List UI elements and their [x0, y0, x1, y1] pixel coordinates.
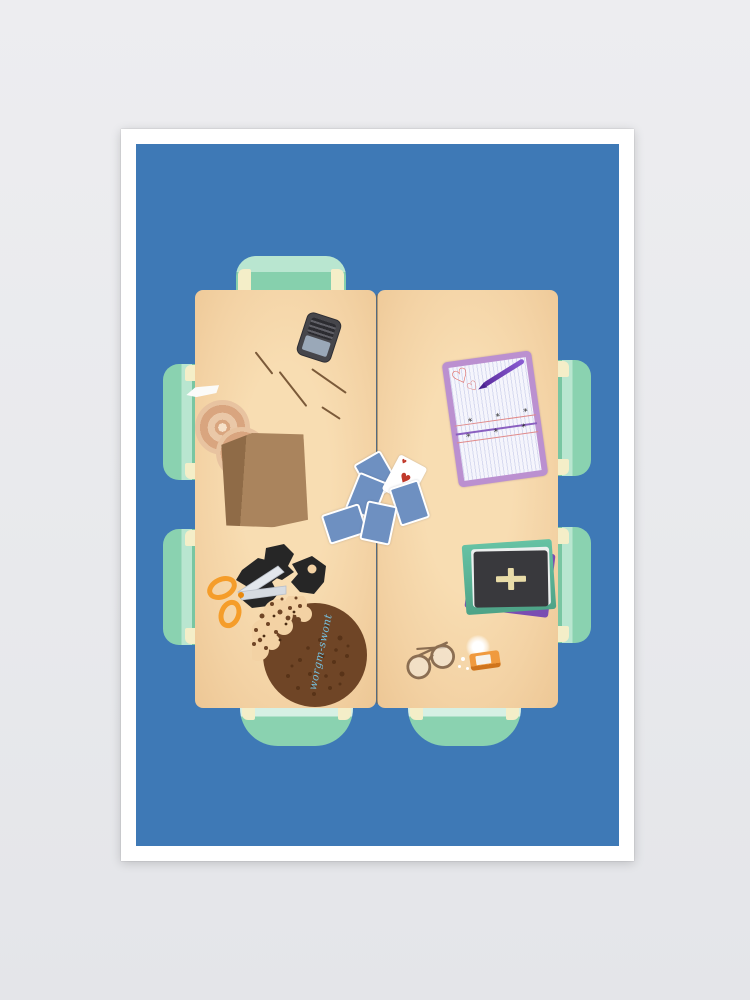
poster: ♥ ♥ ♥ ♡ ♡ * *: [121, 129, 634, 861]
spark-speck: [458, 665, 461, 668]
spark-speck: [466, 667, 469, 670]
notepad: ♡ ♡ * * * * * *: [442, 350, 549, 487]
chair-left-lower: [163, 529, 197, 645]
note-mark: *: [495, 413, 501, 423]
note-mark: *: [523, 408, 529, 418]
heart-pip-icon: ♥: [400, 459, 408, 467]
artwork-canvas: ♥ ♥ ♥ ♡ ♡ * *: [136, 144, 619, 846]
note-mark: *: [493, 429, 499, 439]
note-mark: *: [468, 418, 474, 428]
chair-right-upper: [557, 360, 591, 476]
chair-post: [557, 459, 569, 475]
note-mark: *: [466, 434, 472, 444]
chair-post: [557, 528, 569, 544]
cross-icon: [508, 568, 514, 590]
paper-bag: [215, 428, 313, 533]
chair-left-upper: [163, 364, 197, 480]
note-mark: *: [521, 424, 527, 434]
cookie-icing-text: worgm-swont: [307, 613, 335, 692]
chair-right-lower: [557, 527, 591, 643]
chair-bottom-right: [408, 704, 521, 746]
glasses: [401, 637, 464, 683]
chair-top: [236, 256, 346, 294]
cookie-icing-text-wrap: worgm-swont: [276, 612, 366, 692]
chair-post: [557, 626, 569, 642]
bible-black-book: [474, 550, 549, 607]
scene: ♥ ♥ ♥ ♡ ♡ * *: [0, 0, 750, 1000]
lighter-label: [475, 654, 491, 665]
chair-post: [557, 361, 569, 377]
spark-speck: [461, 657, 465, 661]
